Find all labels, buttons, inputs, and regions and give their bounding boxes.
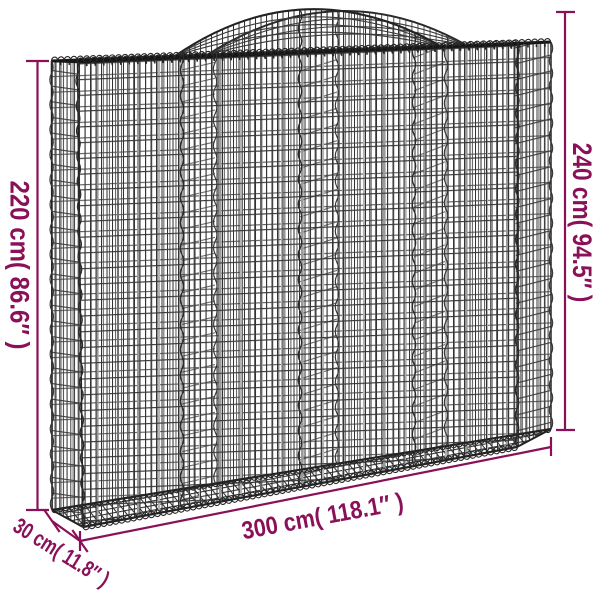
svg-text:240 cm( 94.5″ ): 240 cm( 94.5″ ) bbox=[567, 143, 597, 303]
svg-text:220 cm( 86.6″ ): 220 cm( 86.6″ ) bbox=[4, 180, 34, 349]
